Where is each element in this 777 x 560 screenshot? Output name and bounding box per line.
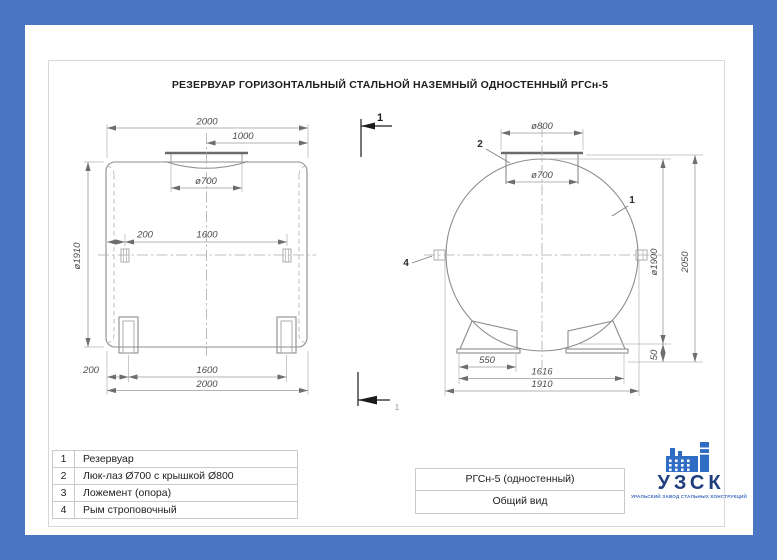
dim-lug-spacing: 1600: [196, 230, 218, 241]
dim-support-offset: 200: [82, 365, 100, 376]
uzsk-logo: УЗСК УРАЛЬСКИЙ ЗАВОД СТАЛЬНЫХ КОНСТРУКЦИ…: [629, 442, 749, 499]
right-view: ø800 ø700 ø1900 2050 50 550 1616 1910 2 …: [403, 121, 703, 396]
factory-icon: [666, 442, 712, 472]
support-leg-left: [119, 317, 138, 353]
saddle-left: [457, 321, 520, 353]
dim-base-span: 1910: [531, 379, 553, 390]
section-label-bottom: 1: [395, 402, 400, 412]
dim-overall-top: 2000: [195, 117, 218, 128]
part-name: Резервуар: [75, 451, 134, 467]
left-view: 2000 1000 ø700 ø1910 200 1600 200 1600 2…: [72, 117, 316, 396]
dim-lug-offset: 200: [136, 230, 154, 241]
label-hatch: 2: [477, 139, 483, 150]
dim-support-spacing: 1600: [196, 365, 218, 376]
section-mark-top: 1: [361, 112, 392, 157]
support-leg-right: [277, 317, 296, 353]
dim-shell-dia-side: ø1910: [72, 242, 83, 270]
logo-abbr: УЗСК: [629, 473, 749, 493]
label-lug: 4: [403, 258, 409, 269]
dim-cover-dia: ø800: [531, 121, 553, 132]
dim-clearance: 50: [649, 349, 660, 360]
part-number: 4: [53, 502, 75, 518]
table-row: 2 Люк-лаз Ø700 с крышкой Ø800: [53, 468, 297, 485]
dim-manhole-end: ø700: [531, 170, 553, 181]
dim-support-width: 550: [479, 355, 496, 366]
part-number: 2: [53, 468, 75, 484]
label-shell: 1: [629, 195, 635, 206]
section-label-top: 1: [377, 112, 383, 124]
section-mark-bottom: 1: [358, 372, 400, 412]
dim-overall-height: 2050: [680, 251, 691, 274]
screenshot-canvas: РЕЗЕРВУАР ГОРИЗОНТАЛЬНЫЙ СТАЛЬНОЙ НАЗЕМН…: [0, 0, 777, 560]
part-number: 3: [53, 485, 75, 501]
title-block-product: РГСн-5 (одностенный): [416, 469, 624, 491]
table-row: 4 Рым строповочный: [53, 502, 297, 518]
dim-manhole-side: ø700: [195, 176, 217, 187]
table-row: 1 Резервуар: [53, 451, 297, 468]
part-name: Люк-лаз Ø700 с крышкой Ø800: [75, 468, 234, 484]
part-name: Рым строповочный: [75, 502, 177, 518]
part-number: 1: [53, 451, 75, 467]
dim-support-span: 1616: [531, 367, 553, 378]
table-row: 3 Ложемент (опора): [53, 485, 297, 502]
title-block: РГСн-5 (одностенный) Общий вид: [415, 468, 625, 514]
title-block-view: Общий вид: [416, 491, 624, 512]
dim-shell-dia-end: ø1900: [649, 248, 660, 276]
dim-overall-bottom: 2000: [195, 379, 218, 390]
dim-half-width: 1000: [232, 131, 254, 142]
lifting-lug-side-left: [121, 249, 129, 262]
parts-table: 1 Резервуар 2 Люк-лаз Ø700 с крышкой Ø80…: [52, 450, 298, 519]
lifting-lug-side-right: [283, 249, 291, 262]
saddle-right: [566, 321, 628, 353]
part-name: Ложемент (опора): [75, 485, 171, 501]
logo-tagline: УРАЛЬСКИЙ ЗАВОД СТАЛЬНЫХ КОНСТРУКЦИЙ: [629, 494, 749, 499]
